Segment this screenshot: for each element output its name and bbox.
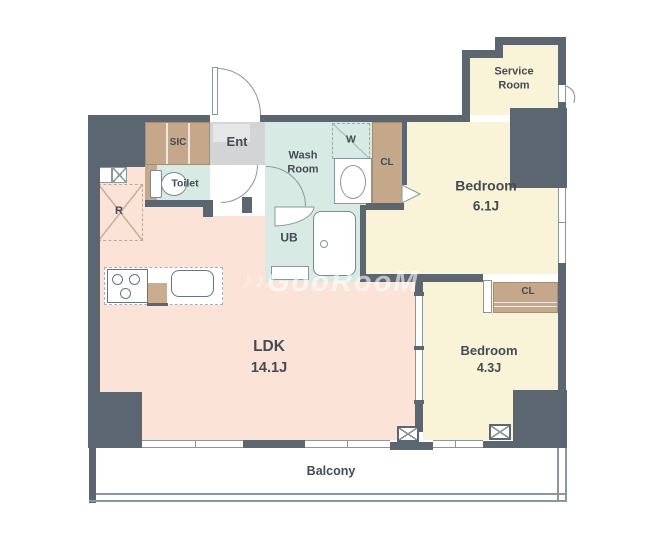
ac-sleeve-icon <box>397 426 419 442</box>
bath-step <box>271 266 309 280</box>
room-size: 6.1J <box>455 198 516 215</box>
washer-label: W <box>346 133 356 146</box>
service-window-flap-icon <box>566 86 575 103</box>
service-room-label: Service Room <box>488 65 540 93</box>
kitchen-sink-icon <box>171 270 214 297</box>
pillar-bottom-left <box>88 392 142 448</box>
closet-second-door-leaf <box>483 280 492 313</box>
sliding-door-tick <box>414 346 424 350</box>
room-name: Bedroom <box>460 343 517 359</box>
closet-second-shelf-line <box>494 302 557 303</box>
ldk-floor-right <box>360 282 416 440</box>
wall-closet-main-right <box>402 122 407 185</box>
closet-second-shelf-line <box>494 306 557 307</box>
refrigerator-label: R <box>115 205 123 219</box>
bathtub-icon <box>313 211 356 276</box>
balcony-line <box>565 448 567 501</box>
sic-shelf-line <box>188 123 190 164</box>
bedroom-second-label: Bedroom 4.3J <box>460 343 517 377</box>
balcony-line <box>557 448 559 501</box>
wall-shaft-block <box>510 108 567 188</box>
wall-bath-right <box>360 205 366 282</box>
ac-sleeve-icon <box>489 424 511 440</box>
room-size: 14.1J <box>251 359 287 377</box>
wall-service-top <box>495 37 566 45</box>
wall-service-right <box>558 37 566 85</box>
sic-label: SIC <box>170 137 187 150</box>
washbasin-icon <box>334 158 372 204</box>
window <box>558 188 566 263</box>
balcony-line <box>89 500 567 502</box>
sliding-door-tick <box>414 292 424 296</box>
toilet-label: Toilet <box>171 177 198 190</box>
floor-plan: SIC Ent Toilet Wash Room W CL UB R Servi… <box>0 0 664 560</box>
ldk-label: LDK 14.1J <box>251 337 287 378</box>
balcony-label: Balcony <box>307 464 356 480</box>
wall-bedroom-main-top-ext <box>366 203 404 210</box>
service-room-window <box>558 85 566 102</box>
sic-shelf-line <box>166 123 168 164</box>
wall-top-b <box>260 115 470 122</box>
wall-bottom-solid <box>243 440 305 448</box>
wall-right-mid <box>558 263 566 392</box>
balcony-line <box>96 493 566 495</box>
wall-balcony-left <box>89 448 96 503</box>
window <box>433 440 483 448</box>
wall-divider-top <box>415 274 423 294</box>
washroom-label: Wash Room <box>280 149 326 177</box>
room-name: LDK <box>251 337 287 356</box>
sliding-door-tick <box>414 400 424 404</box>
stove-icon <box>107 269 148 303</box>
bedroom-main-floor-ext <box>366 210 406 274</box>
room-name: Bedroom <box>455 177 516 195</box>
wall-hall-stub-right <box>242 197 252 213</box>
window <box>305 440 390 448</box>
wall-pedestal-a <box>390 442 433 450</box>
room-size: 4.3J <box>460 361 517 377</box>
wall-hall-stub-left <box>203 200 213 217</box>
closet-main-label: CL <box>380 157 393 170</box>
entrance-label: Ent <box>227 134 248 150</box>
wall-pedestal-b <box>483 441 515 448</box>
closet-second-label: CL <box>521 286 534 299</box>
bedroom-main-label: Bedroom 6.1J <box>455 177 516 214</box>
bath-label: UB <box>280 231 297 246</box>
window <box>142 440 243 448</box>
pillar-bottom-right <box>513 390 567 448</box>
shaft-icon <box>112 167 127 183</box>
wall-top-a <box>88 115 210 122</box>
wall-block-topleft <box>88 115 145 167</box>
entrance-door-arc <box>217 68 261 115</box>
counter-gap <box>148 283 167 305</box>
kitchen-wall-stub <box>147 303 168 306</box>
wall-service-left <box>462 50 470 122</box>
